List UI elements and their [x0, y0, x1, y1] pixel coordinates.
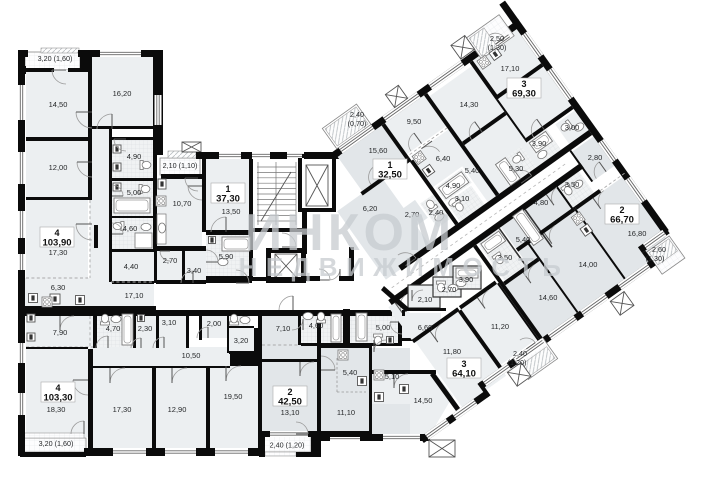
svg-text:2,40 (1,20): 2,40 (1,20)	[270, 441, 305, 450]
svg-text:5,40: 5,40	[516, 235, 531, 244]
svg-text:2,40: 2,40	[350, 110, 364, 119]
svg-text:2,70: 2,70	[163, 256, 178, 265]
svg-text:32,50: 32,50	[378, 170, 402, 181]
svg-text:4,40: 4,40	[124, 262, 139, 271]
svg-text:12,90: 12,90	[168, 405, 187, 414]
svg-text:4,90: 4,90	[446, 181, 461, 190]
svg-text:4,70: 4,70	[106, 324, 121, 333]
svg-text:5,40: 5,40	[465, 166, 480, 175]
svg-text:42,50: 42,50	[278, 397, 302, 408]
svg-text:3,20: 3,20	[234, 336, 249, 345]
svg-text:14,50: 14,50	[49, 100, 68, 109]
svg-text:10,70: 10,70	[173, 199, 192, 208]
svg-text:4,60: 4,60	[309, 321, 324, 330]
svg-text:3,50: 3,50	[565, 180, 580, 189]
svg-text:2,00: 2,00	[207, 319, 222, 328]
svg-text:6,60: 6,60	[418, 323, 433, 332]
svg-text:2,30: 2,30	[138, 324, 153, 333]
svg-text:14,30: 14,30	[460, 100, 479, 109]
svg-text:17,30: 17,30	[49, 248, 68, 257]
svg-text:2,80: 2,80	[588, 153, 603, 162]
svg-text:3,20 (1,60): 3,20 (1,60)	[38, 54, 73, 63]
svg-text:64,10: 64,10	[452, 369, 476, 380]
svg-text:66,70: 66,70	[610, 215, 634, 226]
svg-text:7,90: 7,90	[53, 328, 68, 337]
svg-text:3,90: 3,90	[532, 139, 547, 148]
svg-text:14,50: 14,50	[414, 396, 433, 405]
svg-text:2: 2	[287, 387, 292, 397]
svg-text:5,00: 5,00	[376, 323, 391, 332]
svg-text:5,40: 5,40	[343, 368, 358, 377]
svg-text:15,60: 15,60	[369, 146, 388, 155]
svg-text:16,80: 16,80	[628, 229, 647, 238]
svg-text:37,30: 37,30	[216, 194, 240, 205]
svg-text:6,30: 6,30	[51, 283, 66, 292]
svg-text:11,80: 11,80	[443, 347, 461, 356]
svg-text:4,90: 4,90	[127, 152, 142, 161]
svg-text:14,00: 14,00	[579, 260, 598, 269]
svg-text:2,10: 2,10	[418, 295, 433, 304]
svg-text:13,10: 13,10	[281, 408, 300, 417]
svg-text:103,30: 103,30	[43, 393, 72, 404]
svg-text:11,10: 11,10	[337, 408, 355, 417]
svg-text:5,10: 5,10	[385, 372, 400, 381]
svg-text:11,20: 11,20	[491, 322, 509, 331]
svg-text:10,50: 10,50	[182, 351, 201, 360]
svg-text:103,90: 103,90	[42, 238, 71, 249]
svg-text:(1,30): (1,30)	[488, 43, 507, 52]
svg-text:3,10: 3,10	[455, 194, 470, 203]
svg-text:3,40: 3,40	[187, 266, 202, 275]
svg-text:3: 3	[521, 79, 526, 89]
svg-text:4,80: 4,80	[534, 198, 549, 207]
svg-text:(0,70): (0,70)	[348, 119, 367, 128]
svg-text:17,10: 17,10	[125, 291, 144, 300]
svg-text:69,30: 69,30	[512, 89, 536, 100]
svg-text:3: 3	[461, 359, 466, 369]
svg-text:2,70: 2,70	[442, 285, 457, 294]
svg-text:2,10 (1,10): 2,10 (1,10)	[163, 161, 198, 170]
svg-text:6,40: 6,40	[436, 154, 451, 163]
svg-text:17,30: 17,30	[113, 405, 132, 414]
svg-text:2: 2	[619, 205, 624, 215]
svg-text:13,50: 13,50	[222, 207, 241, 216]
svg-text:17,10: 17,10	[501, 64, 520, 73]
svg-text:(1,20): (1,20)	[508, 358, 527, 367]
svg-text:2,60: 2,60	[652, 245, 666, 254]
svg-text:3,00: 3,00	[565, 123, 580, 132]
svg-text:НЕДВИЖИМОСТЬ: НЕДВИЖИМОСТЬ	[239, 252, 570, 282]
svg-text:4: 4	[54, 228, 59, 238]
svg-text:1: 1	[225, 184, 230, 194]
svg-text:3,10: 3,10	[162, 318, 177, 327]
svg-text:9,50: 9,50	[407, 117, 422, 126]
svg-text:1: 1	[387, 160, 392, 170]
svg-text:16,20: 16,20	[113, 89, 132, 98]
svg-text:19,50: 19,50	[224, 392, 243, 401]
svg-text:14,60: 14,60	[539, 293, 558, 302]
svg-text:4: 4	[55, 383, 60, 393]
svg-text:5,00: 5,00	[127, 188, 142, 197]
svg-text:18,30: 18,30	[47, 405, 66, 414]
svg-text:5,30: 5,30	[509, 164, 524, 173]
svg-text:5,90: 5,90	[219, 252, 234, 261]
svg-text:12,00: 12,00	[49, 163, 68, 172]
svg-text:7,10: 7,10	[276, 324, 291, 333]
svg-text:2,50: 2,50	[490, 34, 504, 43]
svg-text:4,60: 4,60	[123, 224, 138, 233]
svg-text:(1,30): (1,30)	[646, 254, 665, 263]
svg-text:3,20 (1,60): 3,20 (1,60)	[39, 439, 74, 448]
svg-text:2,40: 2,40	[513, 349, 527, 358]
